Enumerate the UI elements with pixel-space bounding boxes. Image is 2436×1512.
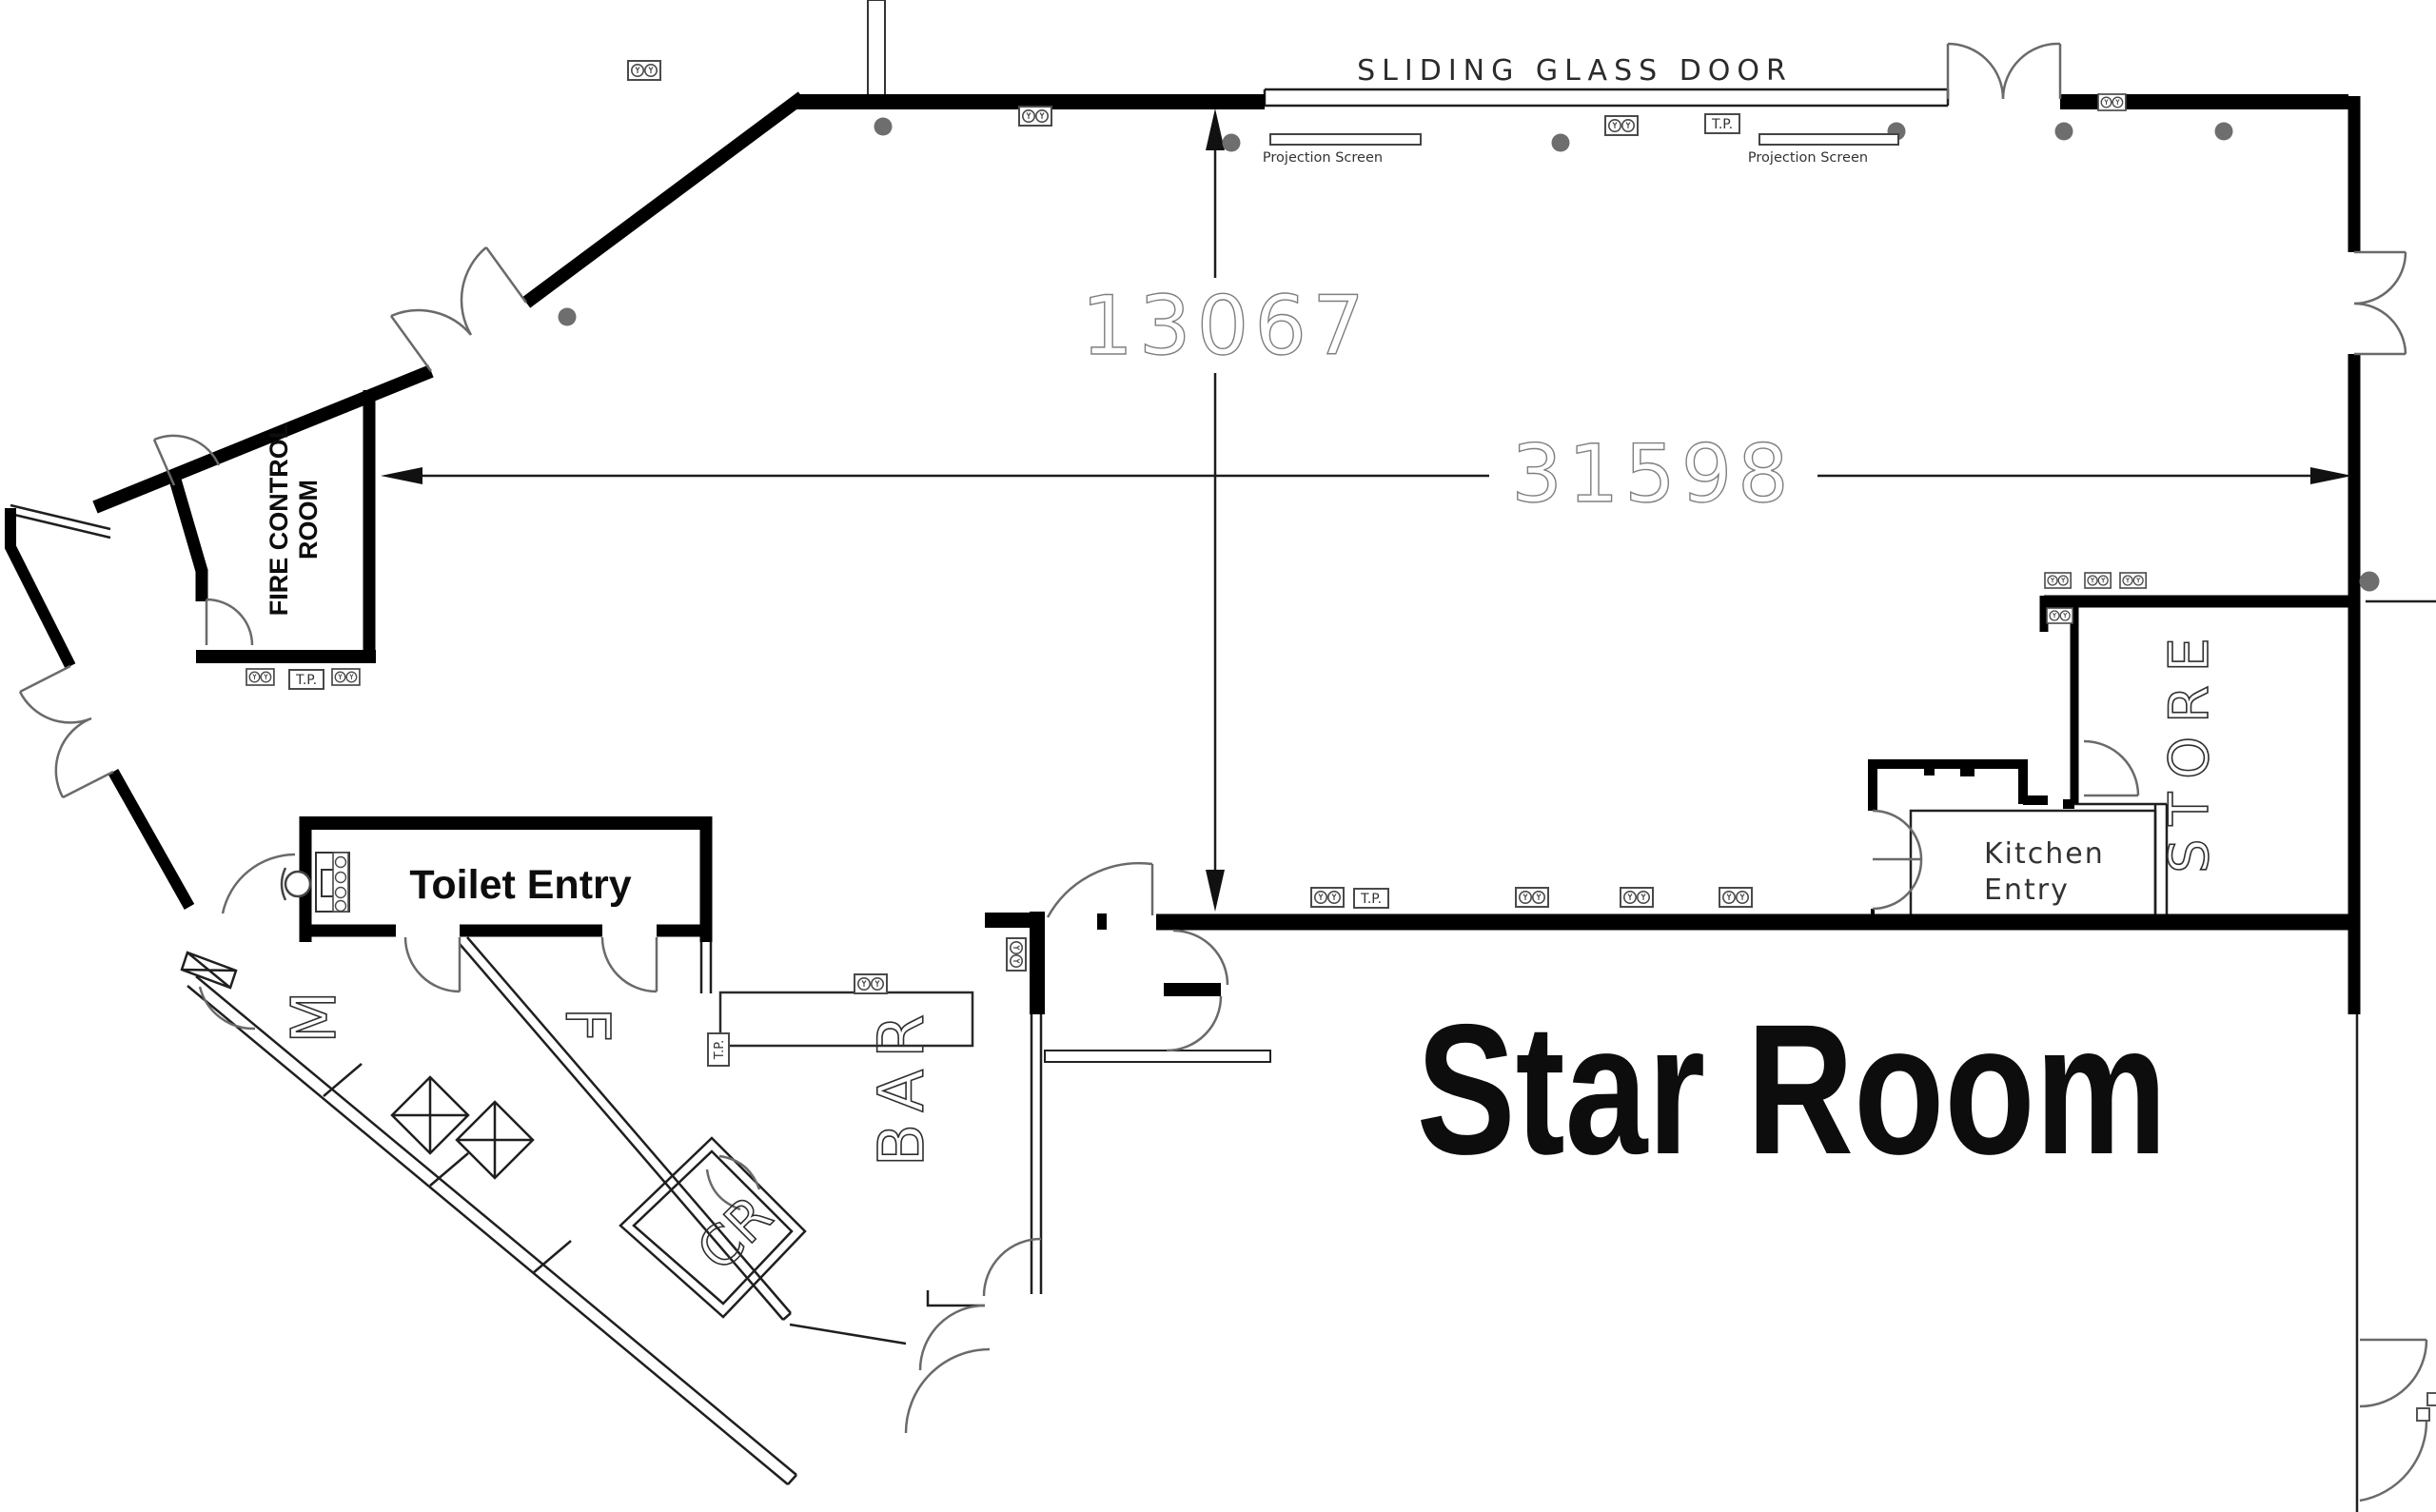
arrow-right-icon bbox=[2310, 467, 2352, 484]
door-frame bbox=[2417, 1408, 2429, 1421]
toilet-entry-label: Toilet Entry bbox=[409, 862, 631, 908]
projection-screens: Projection Screen Projection Screen bbox=[1263, 134, 1898, 166]
kitchen-entry-label-line1: Kitchen bbox=[1984, 837, 2105, 871]
power-outlets bbox=[246, 61, 2146, 993]
fire-control-room-label-line2: ROOM bbox=[294, 480, 323, 560]
projection-screen-label: Projection Screen bbox=[1263, 150, 1383, 166]
tp-label: T.P. bbox=[713, 1040, 727, 1060]
wall-stub bbox=[868, 0, 885, 95]
female-toilet-label: F bbox=[551, 1008, 621, 1043]
store-label: STORE bbox=[2158, 624, 2221, 873]
downlight-dot bbox=[874, 118, 893, 136]
projection-screen-label: Projection Screen bbox=[1748, 150, 1868, 166]
downlight-dot bbox=[2055, 123, 2073, 141]
downlight-dot bbox=[1223, 134, 1241, 152]
star-room-label: Star Room bbox=[1417, 986, 2168, 1193]
dimension-overall-width: 31598 bbox=[1511, 427, 1794, 520]
counter bbox=[1045, 1051, 1270, 1062]
downlight-dots bbox=[559, 118, 2380, 592]
floor-plan: 13067 31598 T.P. T.P. bbox=[0, 0, 2436, 1512]
floor-plan-canvas: 13067 31598 T.P. T.P. bbox=[0, 0, 2436, 1512]
arrow-down-icon bbox=[1206, 870, 1225, 912]
male-toilet-label: M bbox=[280, 991, 350, 1043]
downlight-dot bbox=[2215, 123, 2233, 141]
arrow-up-icon bbox=[1206, 108, 1225, 150]
downlight-dot bbox=[559, 308, 577, 326]
desk-and-chair bbox=[282, 853, 349, 912]
sliding-glass-door-label: SLIDING GLASS DOOR bbox=[1357, 54, 1793, 88]
downlight-dot bbox=[2360, 572, 2380, 592]
chair bbox=[285, 872, 310, 896]
tp-label: T.P. bbox=[1360, 892, 1382, 907]
kitchen-entry-label-line2: Entry bbox=[1984, 874, 2070, 907]
downlight-dot bbox=[1552, 134, 1570, 152]
door-frame bbox=[2427, 1393, 2436, 1405]
dimension-lines: 13067 31598 bbox=[381, 108, 2352, 912]
tp-label: T.P. bbox=[295, 673, 317, 688]
tp-label: T.P. bbox=[1711, 117, 1733, 132]
bar-label: BAR bbox=[865, 1003, 938, 1167]
room-labels: SLIDING GLASS DOOR FIRE CONTROL ROOM Toi… bbox=[265, 54, 2221, 1284]
arrow-left-icon bbox=[381, 467, 422, 484]
dimension-room-depth: 13067 bbox=[1081, 279, 1370, 374]
door-stop bbox=[1164, 983, 1221, 996]
fire-control-room-label-line1: FIRE CONTROL bbox=[265, 423, 293, 617]
